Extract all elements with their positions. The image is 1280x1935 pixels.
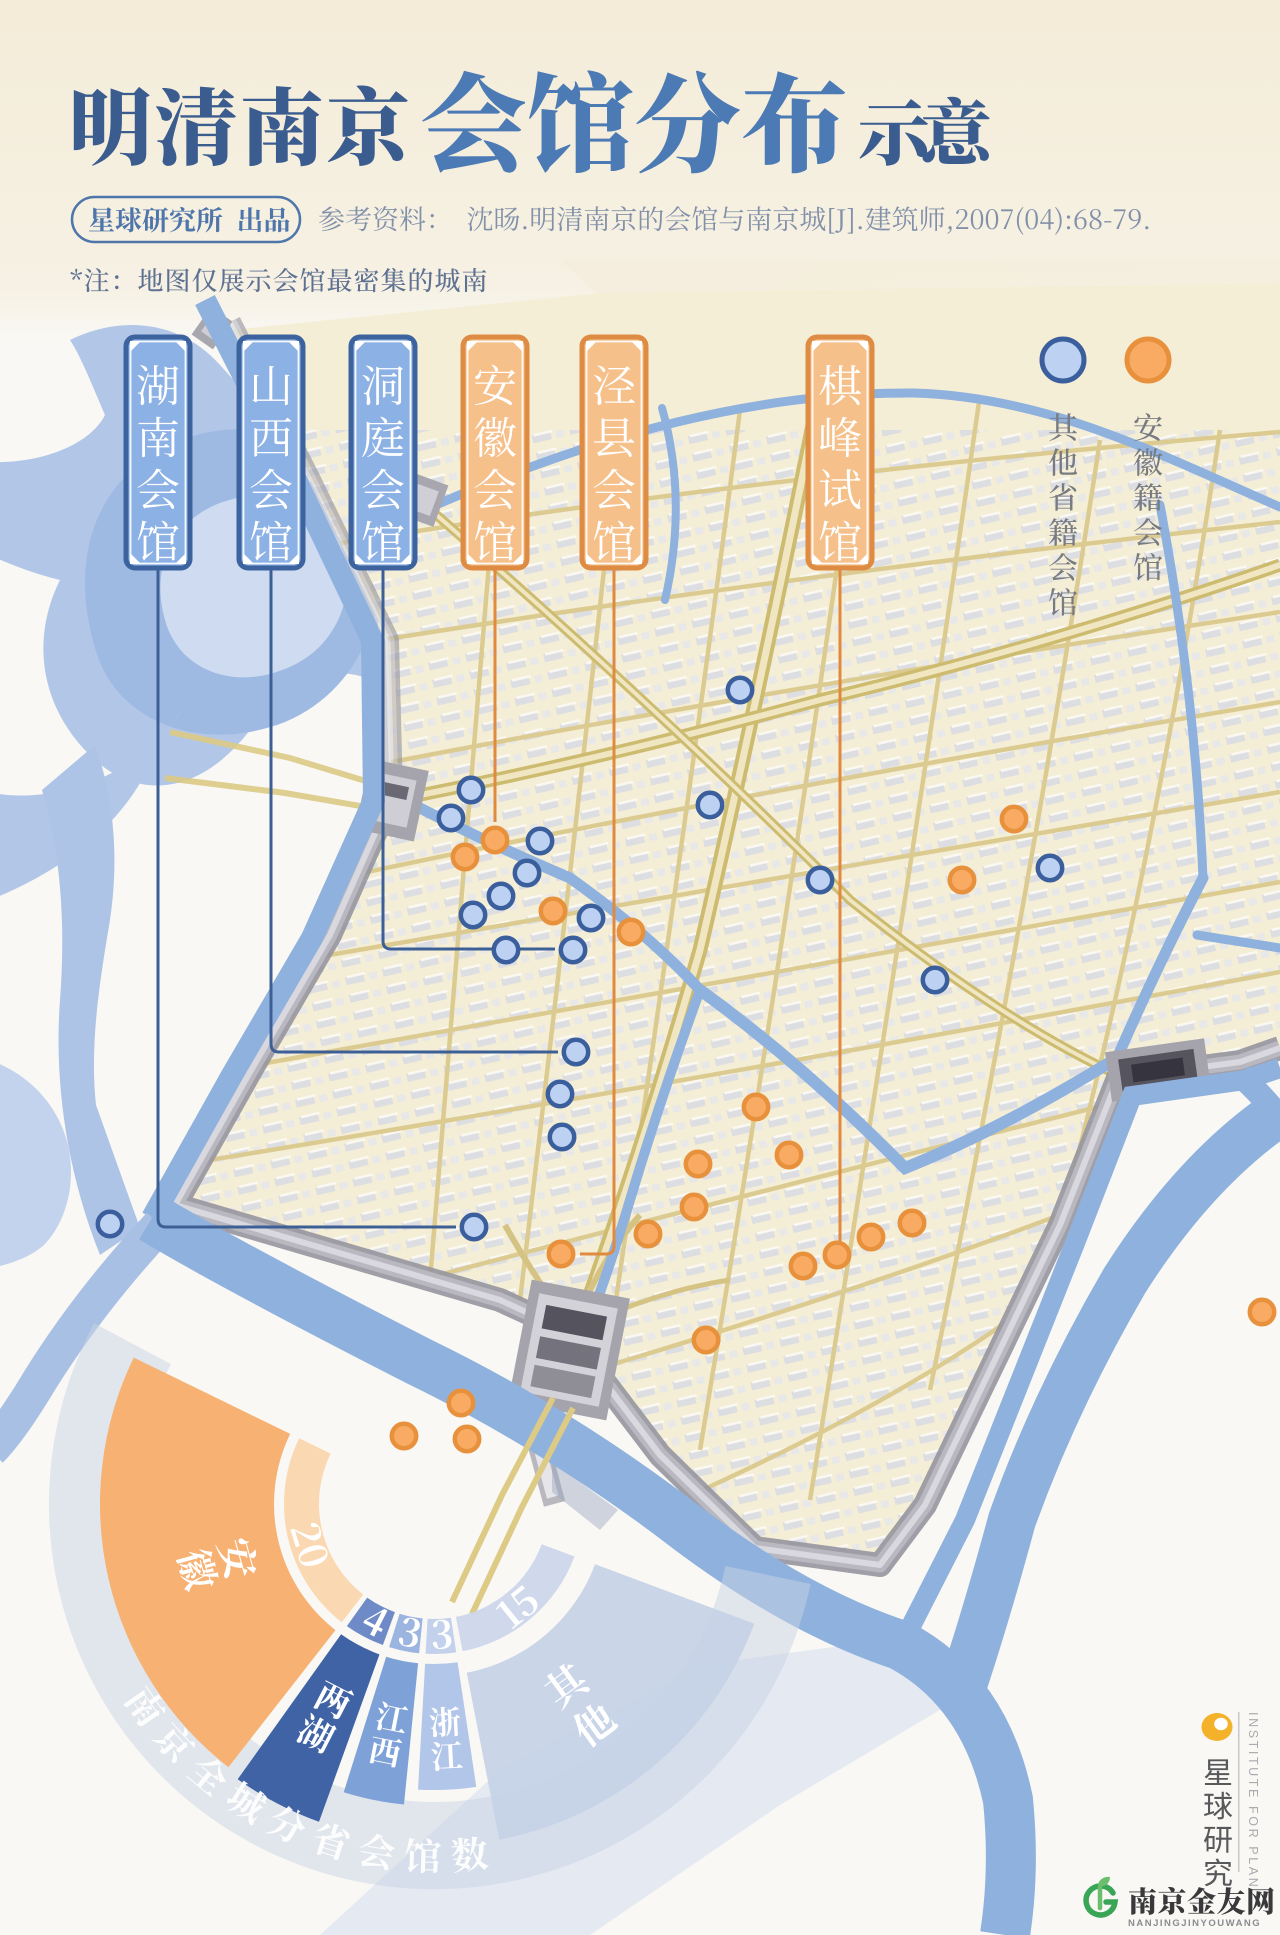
svg-text:INSTITUTE FOR PLAN: INSTITUTE FOR PLAN xyxy=(1246,1712,1260,1889)
svg-text:NANJINGJINYOUWANG: NANJINGJINYOUWANG xyxy=(1128,1918,1261,1929)
